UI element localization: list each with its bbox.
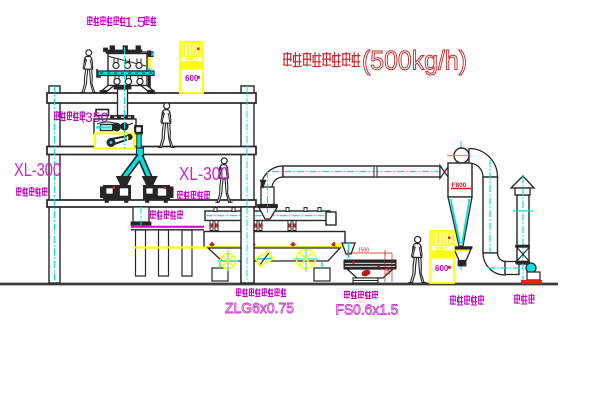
svg-text:600: 600 <box>185 74 199 83</box>
svg-text:600: 600 <box>435 264 449 273</box>
svg-text:(500kg/h): (500kg/h) <box>362 46 467 76</box>
svg-text:FS0.6x1.5: FS0.6x1.5 <box>336 302 399 319</box>
svg-text:1500: 1500 <box>358 248 369 254</box>
svg-text:XL-300: XL-300 <box>14 160 61 180</box>
svg-text:350: 350 <box>85 109 109 125</box>
svg-text:345: 345 <box>386 266 392 275</box>
svg-text:XL-300: XL-300 <box>179 164 229 184</box>
svg-text:ZLG6x0.75: ZLG6x0.75 <box>225 300 294 317</box>
svg-text:1.5: 1.5 <box>125 14 146 31</box>
